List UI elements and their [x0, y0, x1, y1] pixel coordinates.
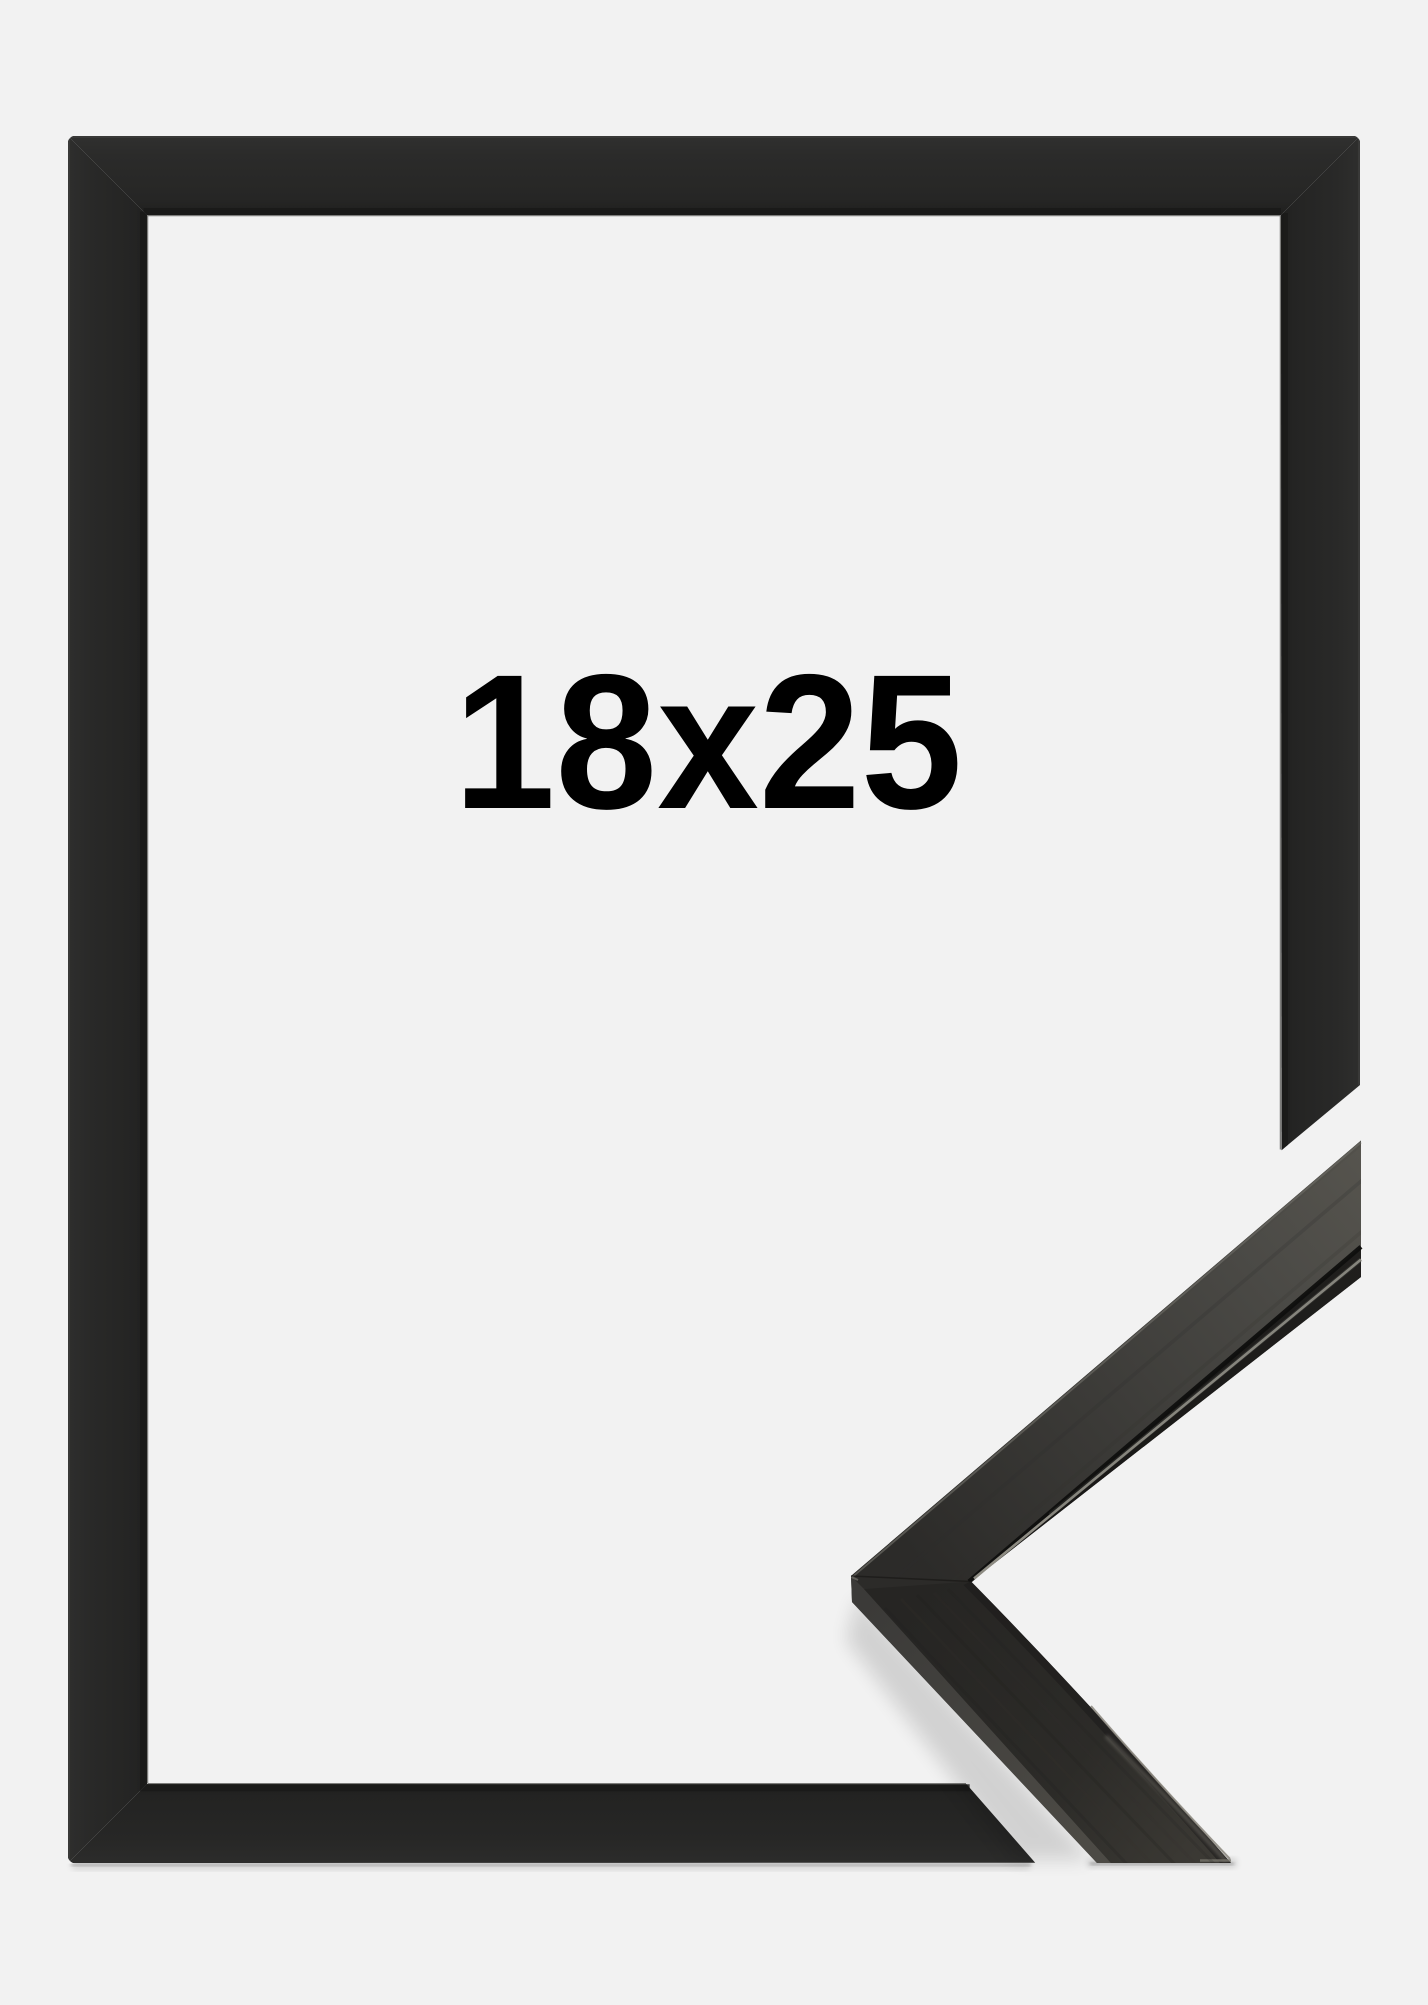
svg-text:18x25: 18x25	[454, 634, 963, 849]
